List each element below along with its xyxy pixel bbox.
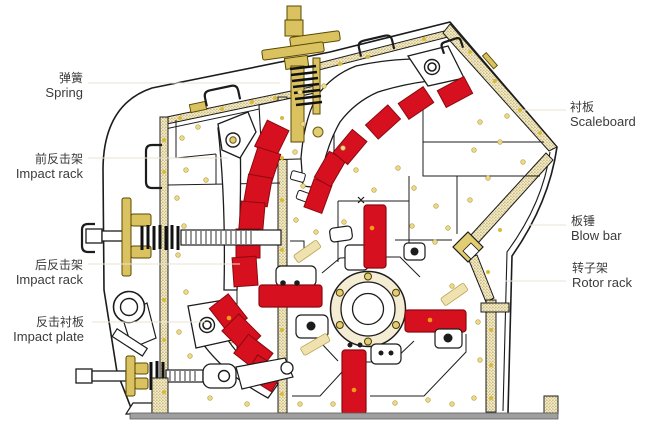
svg-text:Scaleboard: Scaleboard: [570, 114, 636, 129]
svg-text:反击衬板: 反击衬板: [36, 315, 84, 329]
svg-text:Impact plate: Impact plate: [13, 329, 84, 344]
svg-text:Blow bar: Blow bar: [571, 228, 622, 243]
svg-text:Impact rack: Impact rack: [16, 272, 84, 287]
svg-text:Impact rack: Impact rack: [16, 166, 84, 181]
svg-text:Spring: Spring: [45, 85, 83, 100]
svg-text:弹簧: 弹簧: [59, 70, 83, 85]
svg-text:衬板: 衬板: [570, 100, 594, 114]
svg-text:后反击架: 后反击架: [35, 258, 83, 272]
svg-text:板锤: 板锤: [571, 213, 595, 228]
svg-text:Rotor rack: Rotor rack: [572, 275, 632, 290]
svg-text:转子架: 转子架: [572, 260, 608, 275]
svg-text:前反击架: 前反击架: [35, 151, 83, 166]
